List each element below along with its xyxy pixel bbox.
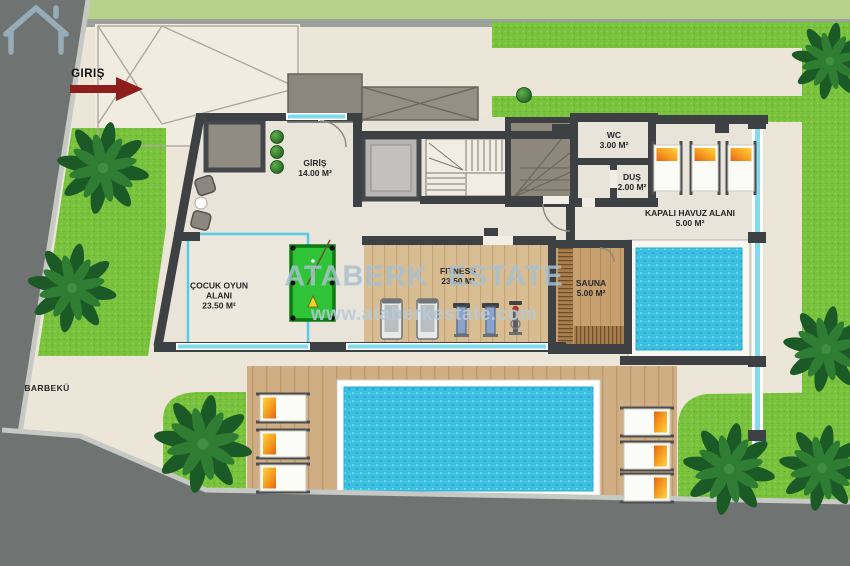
indoor-pool <box>628 240 750 358</box>
room-name: ÇOCUK OYUN ALANI <box>186 281 252 301</box>
room-area: 23.50 M² <box>186 301 252 311</box>
watermark-house-icon <box>0 0 80 60</box>
sauna-bench-left <box>558 248 573 344</box>
room-label-cocuk: ÇOCUK OYUN ALANI 23.50 M² <box>186 281 252 312</box>
room-name: KAPALI HAVUZ ALANI <box>615 208 765 218</box>
room-area: 2.00 M² <box>618 182 647 192</box>
room-label-giris: GİRİŞ 14.00 M² <box>298 158 332 178</box>
staircase <box>426 139 506 196</box>
barbecue-label: BARBEKÜ <box>24 383 69 393</box>
billiard-table <box>290 240 334 321</box>
storage-room <box>206 122 263 170</box>
room-area: 14.00 M² <box>298 168 332 178</box>
entry-ramp <box>362 87 478 120</box>
room-name: GİRİŞ <box>298 158 332 168</box>
room-label-dus: DUŞ 2.00 M² <box>618 172 647 192</box>
room-label-wc: WC 3.00 M² <box>600 130 629 150</box>
outdoor-pool <box>337 380 600 498</box>
room-area: 5.00 M² <box>576 288 606 298</box>
room-area: 23.50 M² <box>440 276 476 286</box>
room-area: 3.00 M² <box>600 140 629 150</box>
grass-top-strip <box>492 22 850 48</box>
sauna-bench-bottom <box>574 326 624 344</box>
site-plan-graphic <box>0 0 850 566</box>
outdoor-loungers-left <box>256 393 310 494</box>
entrance-label: GIRIŞ <box>71 68 105 82</box>
room-name: DUŞ <box>618 172 647 182</box>
elevator <box>363 137 419 199</box>
room-label-sauna: SAUNA 5.00 M² <box>576 278 606 298</box>
room-name: SAUNA <box>576 278 606 288</box>
upper-road-verge <box>0 0 850 20</box>
room-label-fitness: FITNESS 23.50 M² <box>440 266 476 286</box>
room-area: 5.00 M² <box>615 218 765 228</box>
room-name: FITNESS <box>440 266 476 276</box>
outdoor-loungers-right <box>620 407 674 504</box>
floor-plan: ATABERK ESTATE www.ataberkestate.com GIR… <box>0 0 850 566</box>
room-name: WC <box>600 130 629 140</box>
round-table <box>195 197 207 209</box>
room-label-kapali-havuz: KAPALI HAVUZ ALANI 5.00 M² <box>615 208 765 228</box>
indoor-loungers <box>652 141 757 195</box>
